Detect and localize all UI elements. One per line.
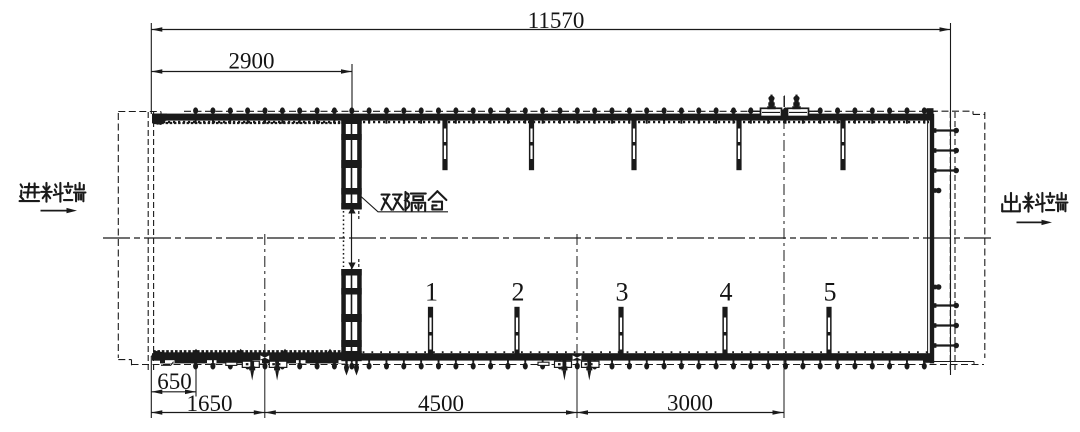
svg-text:11570: 11570	[528, 8, 585, 33]
svg-text:2900: 2900	[229, 49, 275, 74]
svg-text:1: 1	[425, 278, 438, 307]
svg-text:3000: 3000	[667, 391, 713, 416]
svg-text:1650: 1650	[187, 391, 233, 416]
svg-text:4500: 4500	[418, 391, 464, 416]
svg-text:3: 3	[616, 278, 629, 307]
svg-text:2: 2	[512, 278, 525, 307]
svg-text:4: 4	[720, 278, 733, 307]
svg-text:5: 5	[824, 278, 837, 307]
